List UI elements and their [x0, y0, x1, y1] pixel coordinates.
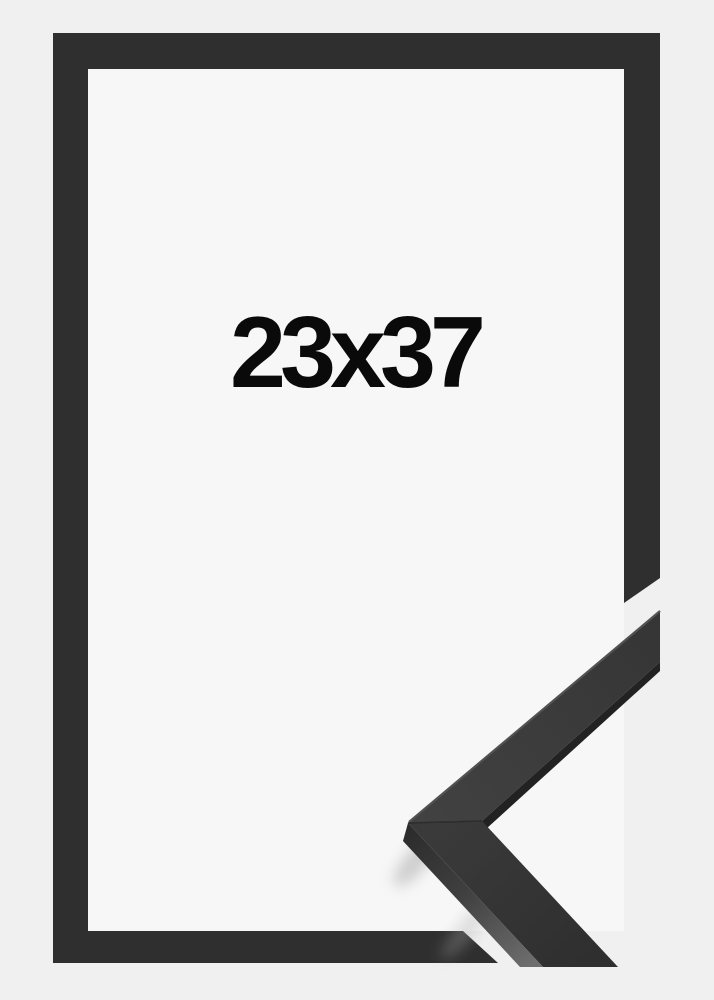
frame-opening — [88, 69, 624, 931]
size-label: 23x37 — [230, 297, 482, 409]
frame-product-image: 23x37 — [0, 0, 714, 1000]
